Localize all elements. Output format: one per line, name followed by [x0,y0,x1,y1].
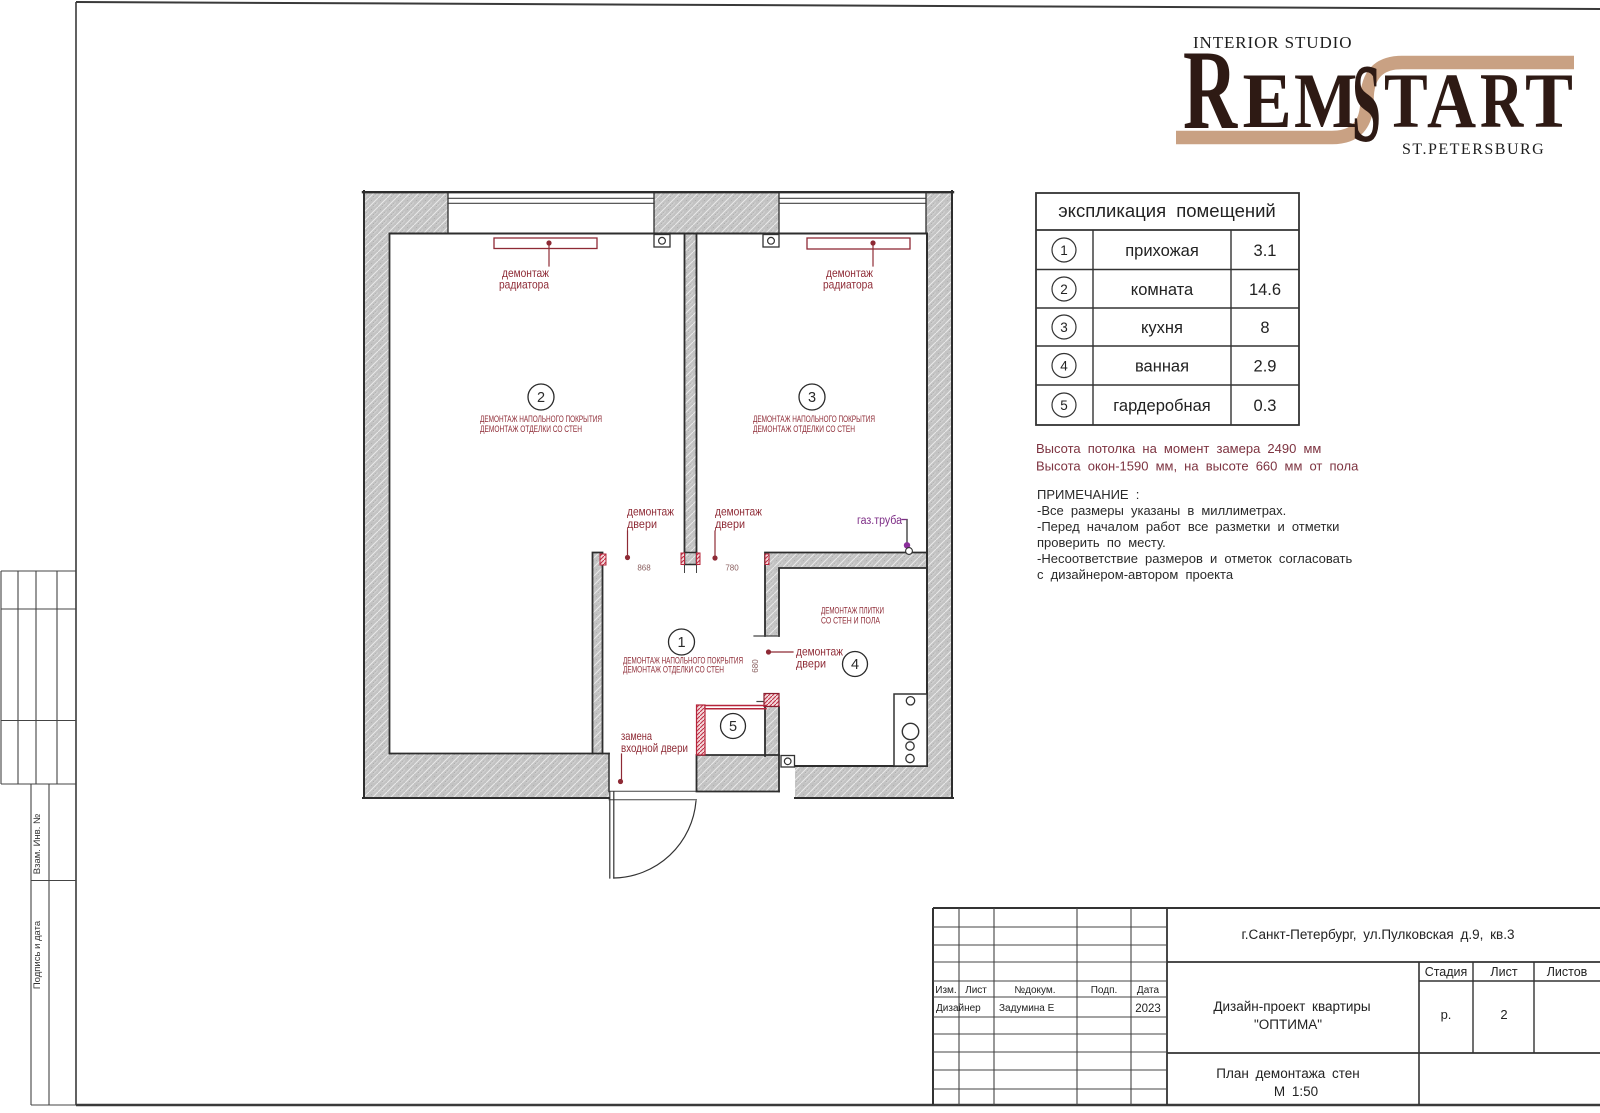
svg-text:Высота окон-1590 мм, на высоте: Высота окон-1590 мм, на высоте 660 мм от… [1036,459,1359,474]
svg-text:868: 868 [637,564,651,573]
svg-text:двери: двери [627,517,657,531]
svg-text:газ.труба: газ.труба [857,515,903,527]
svg-text:R: R [1183,26,1238,152]
svg-text:проверить по месту.: проверить по месту. [1037,535,1166,550]
svg-text:экспликация помещений: экспликация помещений [1058,200,1276,221]
svg-text:р.: р. [1441,1007,1452,1022]
svg-text:с дизайнером-автором проекта: с дизайнером-автором проекта [1037,567,1234,582]
svg-text:680: 680 [751,659,760,673]
svg-text:8: 8 [1260,319,1269,337]
svg-text:кухня: кухня [1141,319,1183,337]
svg-text:комната: комната [1131,281,1194,299]
svg-text:радиатора: радиатора [499,278,549,292]
svg-text:T: T [1525,58,1573,145]
svg-text:780: 780 [725,564,739,573]
svg-text:гардеробная: гардеробная [1113,397,1210,415]
svg-text:Изм.: Изм. [935,985,956,996]
svg-text:двери: двери [796,657,826,671]
svg-text:ДЕМОНТАЖ НАПОЛЬНОГО ПОКРЫТИЯ: ДЕМОНТАЖ НАПОЛЬНОГО ПОКРЫТИЯ [753,414,875,424]
svg-text:радиатора: радиатора [823,278,873,292]
svg-text:S: S [1352,41,1381,165]
svg-text:ванная: ванная [1135,358,1189,376]
svg-text:4: 4 [851,657,859,673]
svg-text:-Все размеры указаны в миллиме: -Все размеры указаны в миллиметрах. [1037,503,1286,518]
svg-text:Подп.: Подп. [1091,985,1118,996]
svg-text:3: 3 [1060,320,1068,335]
svg-text:г.Санкт-Петербург, ул.Пулковск: г.Санкт-Петербург, ул.Пулковская д.9, кв… [1242,927,1515,942]
svg-text:ДЕМОНТАЖ НАПОЛЬНОГО ПОКРЫТИЯ: ДЕМОНТАЖ НАПОЛЬНОГО ПОКРЫТИЯ [480,414,602,424]
svg-text:Подпись и дата: Подпись и дата [32,920,43,989]
svg-text:1: 1 [677,635,685,651]
svg-text:М 1:50: М 1:50 [1274,1084,1318,1099]
svg-text:A: A [1427,57,1476,144]
svg-text:-Перед началом работ все разме: -Перед началом работ все разметки и отме… [1037,519,1339,534]
svg-text:2023: 2023 [1135,1003,1161,1015]
svg-text:-Несоответствие размеров и отм: -Несоответствие размеров и отметок согла… [1037,551,1352,566]
svg-text:R: R [1480,58,1525,145]
svg-text:входной двери: входной двери [621,741,688,755]
svg-text:Дата: Дата [1137,985,1160,996]
svg-text:5: 5 [729,719,737,735]
svg-text:3: 3 [808,390,816,406]
svg-text:E: E [1243,57,1292,145]
svg-text:T: T [1384,57,1428,144]
svg-text:двери: двери [715,517,745,531]
svg-text:2: 2 [1060,282,1068,297]
svg-text:M: M [1294,57,1357,144]
svg-text:Задумина Е: Задумина Е [999,1003,1055,1014]
svg-text:Лист: Лист [965,985,987,996]
svg-text:СО СТЕН И ПОЛА: СО СТЕН И ПОЛА [821,616,880,626]
svg-text:Стадия: Стадия [1425,965,1468,979]
svg-text:прихожая: прихожая [1125,242,1199,260]
svg-text:2: 2 [1500,1007,1507,1022]
svg-text:ДЕМОНТАЖ ОТДЕЛКИ СО СТЕН: ДЕМОНТАЖ ОТДЕЛКИ СО СТЕН [623,665,724,675]
svg-text:ST.PETERSBURG: ST.PETERSBURG [1402,141,1545,158]
svg-text:ДЕМОНТАЖ ОТДЕЛКИ СО СТЕН: ДЕМОНТАЖ ОТДЕЛКИ СО СТЕН [753,424,855,434]
svg-text:Взам. Инв. №: Взам. Инв. № [32,814,43,874]
svg-text:План демонтажа стен: План демонтажа стен [1216,1066,1360,1081]
svg-text:2: 2 [537,390,545,406]
svg-text:№докум.: №докум. [1014,985,1055,996]
svg-text:Лист: Лист [1490,965,1517,979]
svg-text:Дизайнер: Дизайнер [936,1003,981,1014]
svg-text:ПРИМЕЧАНИЕ :: ПРИМЕЧАНИЕ : [1037,487,1139,502]
svg-text:Высота потолка на момент замер: Высота потолка на момент замера 2490 мм [1036,441,1321,456]
svg-text:3.1: 3.1 [1254,242,1277,260]
svg-text:Листов: Листов [1547,965,1588,979]
svg-text:ДЕМОНТАЖ ОТДЕЛКИ СО СТЕН: ДЕМОНТАЖ ОТДЕЛКИ СО СТЕН [480,424,582,434]
svg-text:ДЕМОНТАЖ ПЛИТКИ: ДЕМОНТАЖ ПЛИТКИ [821,606,884,616]
svg-text:5: 5 [1060,398,1068,413]
svg-text:Дизайн-проект квартиры: Дизайн-проект квартиры [1213,999,1370,1014]
svg-text:0.3: 0.3 [1254,397,1277,415]
svg-text:14.6: 14.6 [1249,281,1281,299]
svg-text:"ОПТИМА": "ОПТИМА" [1254,1017,1322,1032]
svg-text:2.9: 2.9 [1254,358,1277,376]
svg-text:4: 4 [1060,359,1068,374]
svg-text:1: 1 [1060,243,1068,258]
